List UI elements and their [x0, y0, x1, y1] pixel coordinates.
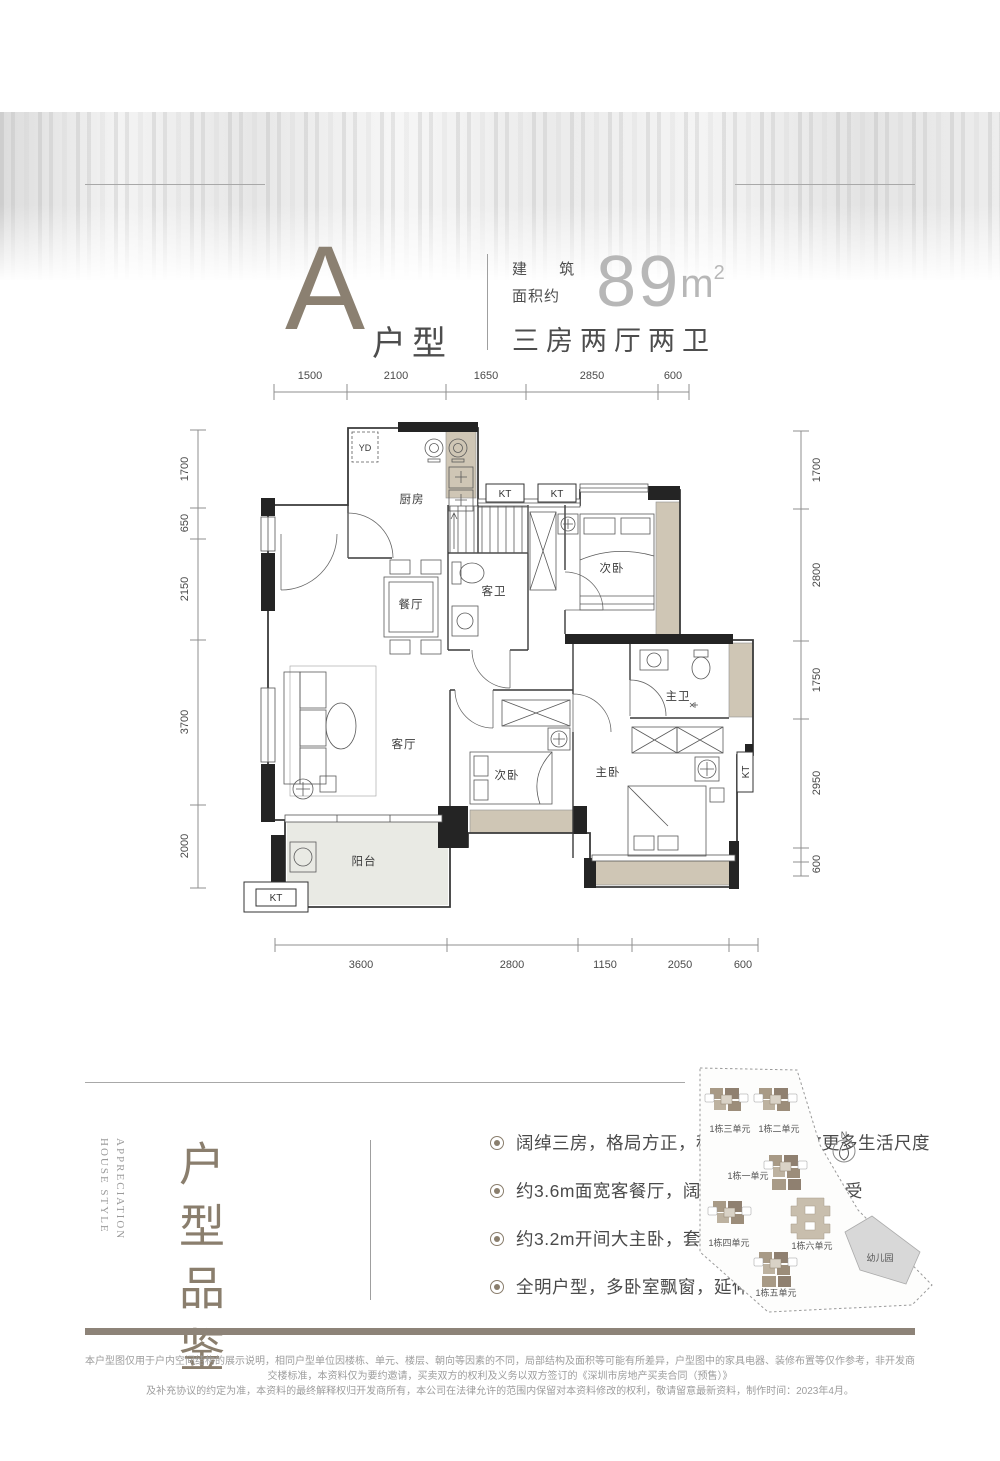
dim-bottom-5: 600: [734, 959, 752, 971]
header-right-rule: [735, 184, 915, 185]
area-label-line1: 建 筑: [512, 258, 588, 279]
label-master-bedroom: 主卧: [596, 766, 621, 779]
kt-label-top-2: KT: [551, 489, 564, 500]
dim-bottom-3: 1150: [593, 959, 617, 971]
building-cluster-6: [791, 1198, 830, 1239]
dim-left-5: 2000: [179, 834, 191, 858]
kt-label-top-1: KT: [499, 489, 512, 500]
label-living: 客厅: [392, 737, 417, 751]
sitemap-label-unit6: 1栋六单元: [791, 1240, 832, 1251]
dim-right-1: 1700: [811, 458, 823, 482]
dim-top-3: 1650: [474, 370, 498, 382]
sitemap-label-unit5: 1栋五单元: [755, 1287, 796, 1298]
label-balcony: 阳台: [352, 854, 377, 868]
features-title-en-line1: HOUSE STYLE: [98, 1138, 110, 1318]
kt-label-right: KT: [741, 766, 752, 779]
label-bedroom-top: 次卧: [600, 561, 625, 575]
label-dining: 餐厅: [399, 597, 424, 611]
dim-left-2: 650: [179, 514, 191, 532]
features-title-en: HOUSE STYLE APPRECIATION: [98, 1138, 126, 1318]
dim-top-5: 600: [664, 370, 682, 382]
master-bath-bay: [729, 643, 753, 717]
area-label: 建 筑 面积约: [512, 248, 588, 316]
bedroom-mid-bay: [470, 810, 573, 833]
dim-right-2: 2800: [811, 563, 823, 587]
bedroom-top-bay: [656, 502, 680, 638]
bullet-icon: [490, 1232, 504, 1246]
area-unit-m: m: [680, 262, 713, 306]
sitemap-label-kindergarten: 幼儿园: [866, 1252, 893, 1263]
features-rule: [85, 1082, 685, 1083]
yd-label: YD: [359, 443, 372, 453]
bullet-icon: [490, 1136, 504, 1150]
kt-label-bottom: KT: [270, 893, 283, 904]
unit-type-letter: A: [285, 228, 365, 348]
sitemap: N: [675, 1045, 1000, 1335]
dim-left-1: 1700: [179, 457, 191, 481]
disclaimer-line2: 及补充协议的约定为准，本资料的最终解释权归开发商所有，本公司在法律允许的范围内保…: [85, 1384, 915, 1399]
dim-bottom-2: 2800: [500, 959, 524, 971]
dim-right-4: 2950: [811, 771, 823, 795]
area-unit-sup: 2: [714, 262, 725, 284]
label-master-bath: 主卫: [666, 690, 691, 703]
dim-right-3: 1750: [811, 668, 823, 692]
north-compass: N: [833, 1130, 855, 1162]
compass-n: N: [841, 1130, 848, 1140]
bottom-divider-bar: [85, 1328, 915, 1335]
header-banner: A 户型 建 筑 面积约 89 m2 三房两厅两卫: [0, 112, 1000, 280]
sitemap-label-unit4: 1栋四单元: [708, 1237, 749, 1248]
dim-left-3: 2150: [179, 577, 191, 601]
area-label-line2: 面积约: [512, 285, 588, 306]
label-guest-bath: 客卫: [482, 584, 507, 598]
disclaimer: 本户型图仅用于户内空间结构的展示说明，相同户型单位因楼栋、单元、楼层、朝向等因素…: [85, 1354, 915, 1399]
label-bedroom-mid: 次卧: [495, 768, 520, 782]
dim-top-4: 2850: [580, 370, 604, 382]
area-unit: m2: [680, 262, 724, 307]
sitemap-label-unit2: 1栋二单元: [758, 1123, 799, 1134]
master-balcony: [592, 860, 735, 885]
bullet-icon: [490, 1184, 504, 1198]
dim-top-2: 2100: [384, 370, 408, 382]
dim-right-5: 600: [811, 855, 823, 873]
sitemap-label-unit3: 1栋三单元: [709, 1123, 750, 1134]
area-value: 89: [596, 248, 680, 316]
header-left-rule: [85, 184, 265, 185]
header-divider: [487, 254, 488, 350]
features-divider: [370, 1140, 371, 1300]
dim-bottom-4: 2050: [668, 959, 692, 971]
dim-bottom-1: 3600: [349, 959, 373, 971]
bullet-icon: [490, 1280, 504, 1294]
door-arcs: [281, 513, 666, 732]
floorplan-drawing: 1500 2100 1650 2850 600 3600 2800 1150 2…: [160, 350, 850, 990]
dim-top-1: 1500: [298, 370, 322, 382]
dim-left-4: 3700: [179, 710, 191, 734]
sitemap-label-unit1: 1栋一单元: [727, 1170, 768, 1181]
area-block: 建 筑 面积约 89 m2: [512, 248, 725, 316]
disclaimer-line1: 本户型图仅用于户内空间结构的展示说明，相同户型单位因楼栋、单元、楼层、朝向等因素…: [85, 1354, 915, 1384]
features-title-cn: 户型品鉴: [176, 1140, 222, 1388]
features-title-en-line2: APPRECIATION: [114, 1138, 126, 1318]
label-kitchen: 厨房: [400, 493, 425, 506]
